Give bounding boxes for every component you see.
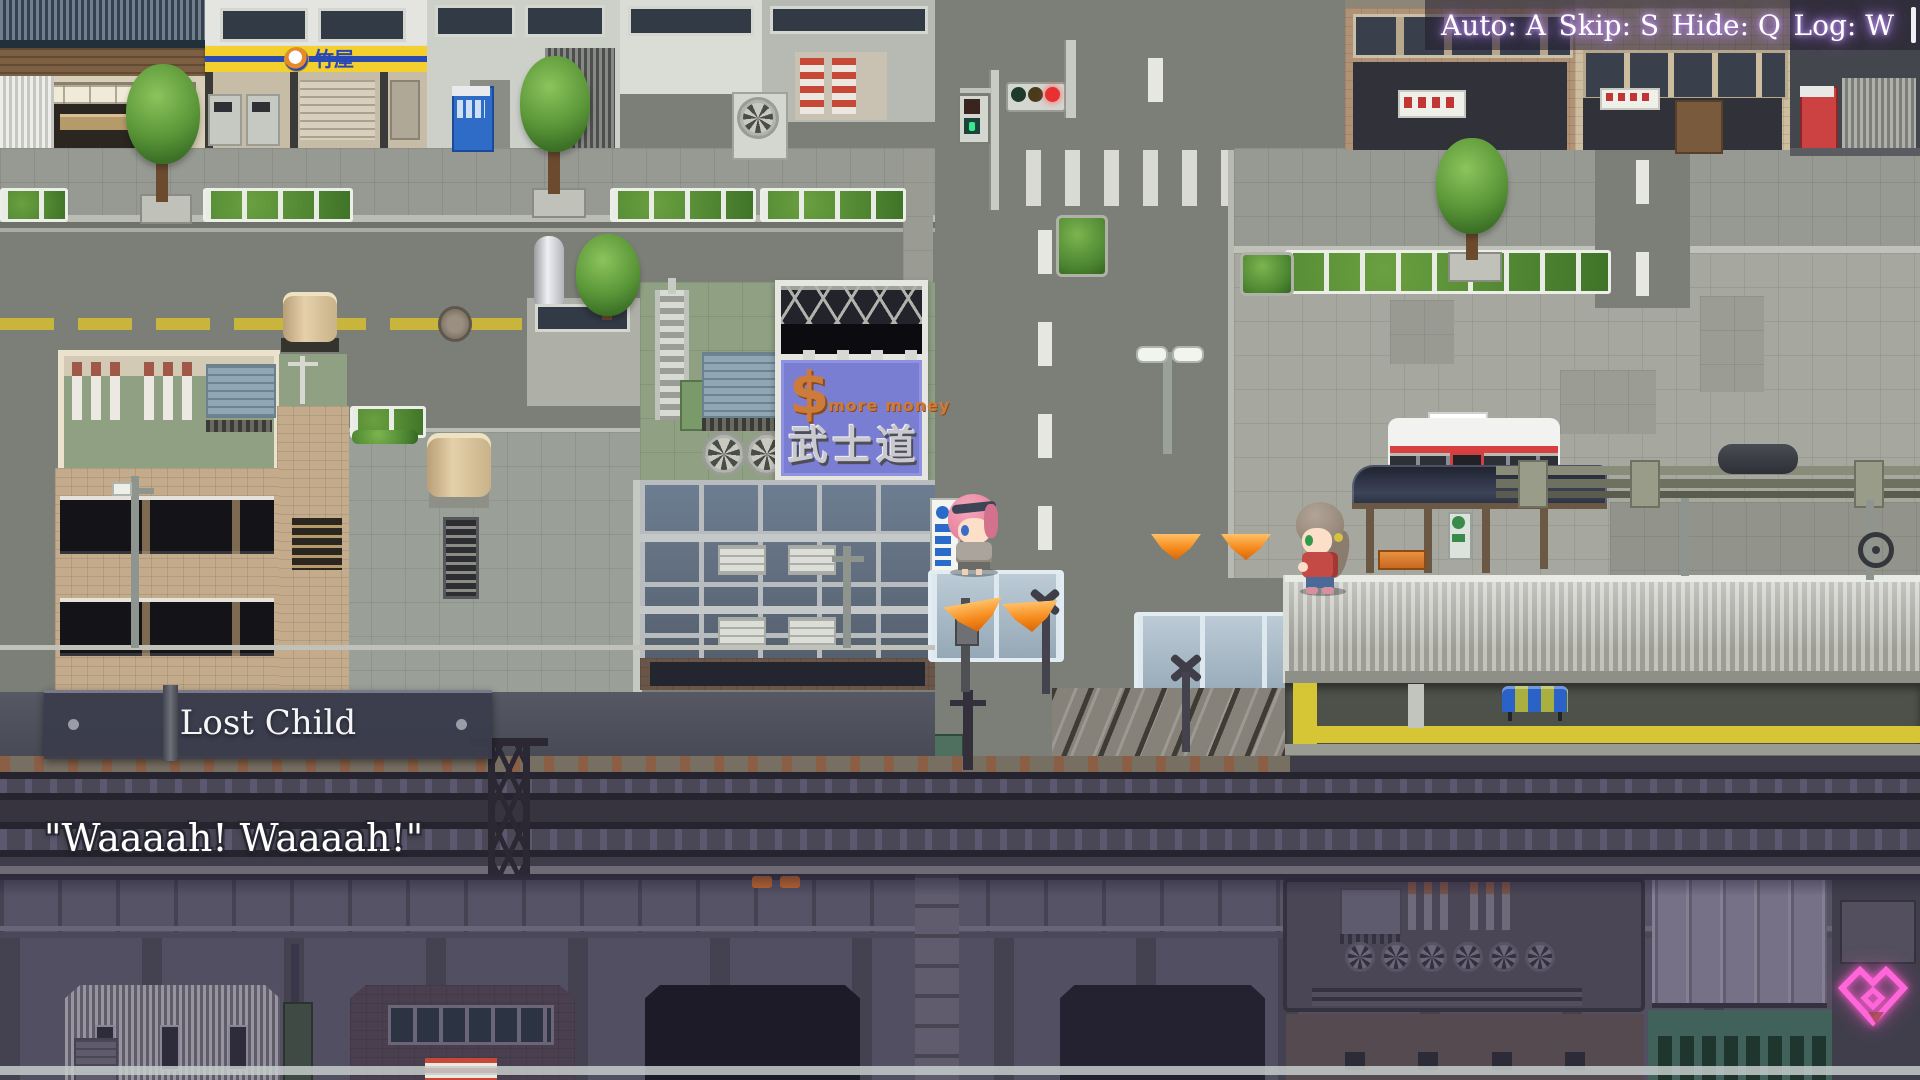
menu-item-skip[interactable]: Skip: S	[1559, 9, 1660, 42]
path-marker-arrow-4	[1220, 534, 1272, 560]
menu-item-hide[interactable]: Hide: Q	[1672, 9, 1781, 42]
path-marker-arrow-1	[942, 597, 1008, 637]
child-shoe-2	[1322, 587, 1334, 594]
dialog-text: "Waaaah! Waaaah!"	[44, 816, 423, 860]
child-hairband	[1334, 533, 1343, 542]
menu-item-auto[interactable]: Auto: A	[1441, 9, 1546, 42]
screenshot-root: 竹屋	[0, 0, 1920, 1080]
pink-girl-hair-strand	[984, 504, 998, 538]
path-marker-arrow-3	[1150, 534, 1202, 560]
pink-girl-jacket	[956, 542, 992, 564]
character-pink-haired-girl	[946, 492, 1002, 576]
child-eye	[1305, 535, 1313, 546]
pink-girl-leg-2	[976, 569, 982, 575]
location-banner: Lost Child	[44, 690, 492, 759]
child-hand	[1298, 562, 1308, 572]
menu-item-log[interactable]: Log: W	[1794, 9, 1895, 42]
path-marker-arrow-2	[1001, 600, 1061, 634]
menu-edge-tick	[1911, 7, 1916, 43]
character-lost-child-girl	[1294, 500, 1352, 596]
quick-menu: Auto: A Skip: S Hide: Q Log: W	[1425, 0, 1920, 50]
pink-girl-eye	[961, 525, 969, 536]
location-banner-title: Lost Child	[44, 703, 492, 743]
characters-layer	[0, 0, 1920, 1080]
child-shoe-1	[1306, 587, 1318, 594]
pink-girl-leg-1	[962, 569, 968, 575]
